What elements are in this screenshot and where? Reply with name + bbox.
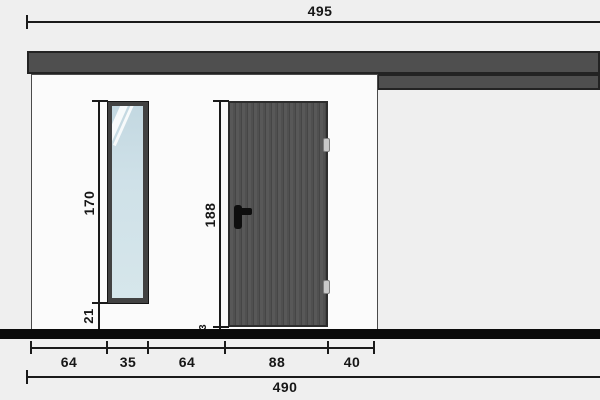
dim-label-segment: 88 bbox=[257, 354, 297, 370]
elevation-drawing: 495 170 21 188 3 64 35 64 88 40 bbox=[0, 0, 600, 400]
door-hinge-top bbox=[323, 138, 330, 152]
ground-line bbox=[0, 329, 600, 339]
top-dimension-left-tick bbox=[26, 15, 28, 29]
window-glass bbox=[112, 106, 143, 298]
dim-label-sill-height: 21 bbox=[77, 304, 99, 328]
dim-label-roof-width: 495 bbox=[288, 3, 352, 19]
dim-label-window-height: 170 bbox=[75, 188, 103, 218]
bottom-dimension-chain-line bbox=[31, 347, 375, 349]
chain-tick bbox=[147, 341, 149, 354]
window-dimension-top-tick bbox=[92, 100, 108, 102]
dim-label-door-height: 188 bbox=[196, 199, 224, 231]
roof-fascia bbox=[27, 51, 600, 74]
dim-label-segment: 64 bbox=[49, 354, 89, 370]
chain-tick bbox=[106, 341, 108, 354]
door-hinge-bottom bbox=[323, 280, 330, 294]
dim-label-segment: 40 bbox=[332, 354, 372, 370]
chain-tick bbox=[30, 341, 32, 354]
dim-label-segment: 64 bbox=[167, 354, 207, 370]
door-dimension-top-tick bbox=[213, 100, 229, 102]
door-handle-lever bbox=[237, 208, 252, 215]
chain-tick bbox=[373, 341, 375, 354]
window bbox=[107, 101, 149, 304]
chain-tick bbox=[327, 341, 329, 354]
roof-side-beam bbox=[377, 74, 600, 90]
door-dimension-bottom-tick bbox=[213, 326, 229, 328]
door bbox=[228, 101, 328, 327]
dim-label-total-width: 490 bbox=[255, 379, 315, 395]
bottom-total-dimension-line bbox=[27, 376, 600, 378]
dim-label-segment: 35 bbox=[108, 354, 148, 370]
chain-tick bbox=[224, 341, 226, 354]
bottom-total-left-tick bbox=[26, 370, 28, 384]
top-dimension-line bbox=[27, 21, 600, 23]
